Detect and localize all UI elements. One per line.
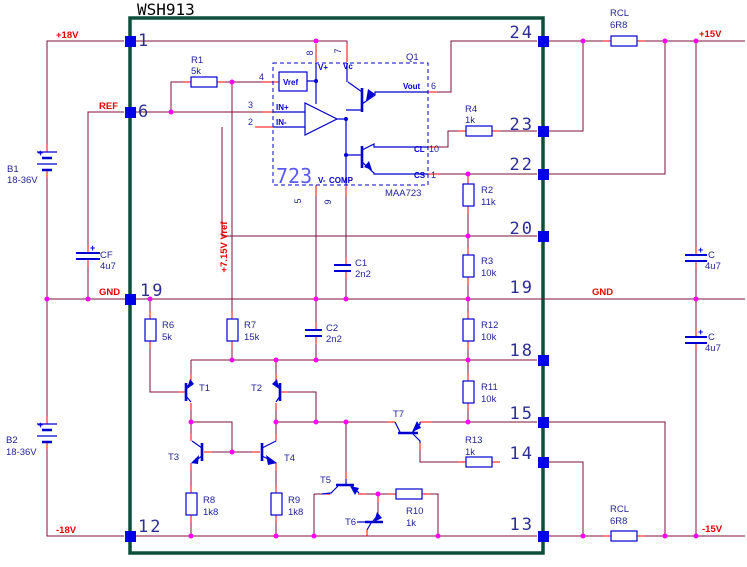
pin-square-23 <box>538 126 549 137</box>
label-C-bottom-plus: + <box>698 327 703 337</box>
schematic-canvas: WSH913 1 6 19 12 24 23 22 20 19 18 15 14… <box>0 0 747 567</box>
label-CF-plus: + <box>90 243 95 253</box>
label-MAA723: MAA723 <box>385 188 421 199</box>
resistor-RCL-bottom <box>611 531 637 541</box>
ic-723-opamp <box>305 103 337 135</box>
label-T7: T7 <box>393 409 404 420</box>
net-label-gnd-left: GND <box>99 287 120 298</box>
transistor-T6 <box>357 512 383 530</box>
label-ic-vout: Vout <box>403 82 421 91</box>
net-label-vref-rail: +7.15V Vref <box>219 221 230 273</box>
pin-label-23: 23 <box>510 115 534 135</box>
resistor-R1 <box>191 77 217 87</box>
label-R2-ref: R2 <box>481 185 493 196</box>
pin-square-19 <box>125 294 136 305</box>
label-vref-block: Vref <box>283 78 298 87</box>
label-R7-ref: R7 <box>244 320 256 331</box>
net-label-minus15: -15V <box>702 524 723 535</box>
label-ic-pin10: 10 <box>429 144 439 154</box>
pin-label-1: 1 <box>138 31 150 51</box>
capacitor-C-bottom <box>685 337 707 343</box>
label-T5: T5 <box>320 475 331 486</box>
pin-square-6 <box>125 107 136 118</box>
label-C-top-ref: C <box>708 250 715 261</box>
label-B1-ref: B1 <box>7 164 19 175</box>
label-ic-pin8: 8 <box>305 50 315 55</box>
label-R3-ref: R3 <box>481 256 493 267</box>
pin-square-18 <box>538 355 549 366</box>
label-R8-val: 1k8 <box>203 507 218 518</box>
resistor-R9 <box>271 493 282 515</box>
label-C2-val: 2n2 <box>326 334 342 345</box>
transistor-T2 <box>272 379 280 402</box>
pin-square-22 <box>538 169 549 180</box>
label-ic-vc: Vc <box>343 62 353 71</box>
label-ic-comp: COMP <box>329 176 354 185</box>
label-R4-val: 1k <box>465 115 475 126</box>
label-ic-pin7: 7 <box>333 48 343 53</box>
wire-r6-column <box>150 299 178 392</box>
resistor-R10 <box>396 489 422 499</box>
resistor-R4 <box>466 126 492 136</box>
wire-negative-rail <box>47 178 745 536</box>
label-R6-ref: R6 <box>162 320 174 331</box>
transistor-T4 <box>262 441 277 465</box>
label-R11-ref: R11 <box>481 382 498 393</box>
label-ic-pin2: 2 <box>248 117 253 127</box>
pin-label-19-left: 19 <box>140 281 164 301</box>
label-RCL-top-val: 6R8 <box>610 20 627 31</box>
net-label-plus15: +15V <box>699 29 722 40</box>
label-RCL-bottom-ref: RCL <box>610 504 629 515</box>
label-C1-val: 2n2 <box>355 269 371 280</box>
label-R7-val: 15k <box>244 332 260 343</box>
resistor-R7 <box>227 319 238 341</box>
wire-in-minus-pin20 <box>222 127 537 236</box>
pin-label-24: 24 <box>510 23 534 43</box>
resistor-R11 <box>463 381 474 403</box>
label-C-top-plus: + <box>698 245 703 255</box>
label-C-bottom-ref: C <box>708 332 715 343</box>
label-R9-val: 1k8 <box>288 507 303 518</box>
label-ic-pin9: 9 <box>323 199 333 204</box>
label-Q1: Q1 <box>406 52 419 63</box>
label-C-top-val: 4u7 <box>705 261 721 272</box>
label-ic-cs: CS <box>414 171 426 180</box>
label-ic-pin1: 1 <box>431 170 436 180</box>
label-ic-inplus: IN+ <box>276 103 289 112</box>
label-ic-cl: CL <box>414 145 425 154</box>
pin-square-20 <box>538 231 549 242</box>
pin-label-18: 18 <box>510 341 534 361</box>
label-ic-inminus: IN- <box>276 118 287 127</box>
label-T6: T6 <box>345 517 356 528</box>
pin-label-12: 12 <box>138 517 162 537</box>
label-C2-ref: C2 <box>326 323 338 334</box>
label-RCL-bottom-val: 6R8 <box>610 516 627 527</box>
resistor-R8 <box>186 493 197 515</box>
label-B2-plus: + <box>38 420 43 430</box>
label-R8-ref: R8 <box>203 495 215 506</box>
label-R10-ref: R10 <box>406 506 423 517</box>
net-label-gnd-right: GND <box>592 287 613 298</box>
label-ic-pin3: 3 <box>248 100 253 110</box>
label-T4: T4 <box>284 453 295 464</box>
label-B1-val: 18-36V <box>7 175 38 186</box>
label-R1-ref: R1 <box>191 55 203 66</box>
pin-label-20: 20 <box>510 219 534 239</box>
label-T2: T2 <box>251 383 262 394</box>
label-ic-pin5: 5 <box>293 198 303 203</box>
label-B1-plus: + <box>38 148 43 158</box>
resistor-R13 <box>466 457 492 467</box>
label-R13-val: 1k <box>465 447 475 458</box>
net-label-ref: REF <box>99 101 118 112</box>
label-T1: T1 <box>199 383 210 394</box>
capacitor-CF <box>76 253 100 259</box>
wire-ref-net <box>88 82 262 360</box>
label-R9-ref: R9 <box>288 495 300 506</box>
transistor-T7 <box>395 421 421 443</box>
capacitor-C2 <box>305 330 322 336</box>
label-C1-ref: C1 <box>355 258 367 269</box>
label-B2-val: 18-36V <box>6 447 37 458</box>
transistor-T1 <box>186 379 194 402</box>
label-R6-val: 5k <box>162 332 172 343</box>
transistors <box>186 379 421 530</box>
label-R12-ref: R12 <box>481 320 498 331</box>
label-R10-val: 1k <box>406 518 416 529</box>
pin-label-6: 6 <box>138 102 150 122</box>
pin-label-14: 14 <box>510 444 534 464</box>
resistor-R3 <box>463 255 474 277</box>
label-ic-vminus: V- <box>318 176 326 185</box>
schematic-title: WSH913 <box>137 0 195 19</box>
capacitor-C-top <box>685 255 707 261</box>
net-label-plus18: +18V <box>56 30 79 41</box>
label-RCL-top-ref: RCL <box>610 8 629 19</box>
pin-square-1 <box>125 36 136 47</box>
label-R1-val: 5k <box>191 66 201 77</box>
pin-label-22: 22 <box>510 155 534 175</box>
label-B2-ref: B2 <box>6 435 18 446</box>
label-R11-val: 10k <box>481 394 497 405</box>
pin-label-19-right: 19 <box>510 278 534 298</box>
label-ic-pin4: 4 <box>259 72 264 82</box>
label-CF-val: 4u7 <box>100 261 116 272</box>
pin-square-12 <box>125 531 136 542</box>
label-R12-val: 10k <box>481 332 497 343</box>
pin-square-13 <box>538 531 549 542</box>
capacitor-C1 <box>334 265 351 271</box>
pin-label-13: 13 <box>510 515 534 535</box>
label-R3-val: 10k <box>481 268 497 279</box>
label-ic-pin6: 6 <box>431 81 436 91</box>
resistor-R6 <box>145 319 156 341</box>
label-T3: T3 <box>168 452 179 463</box>
pin-square-24 <box>538 36 549 47</box>
module-border <box>130 18 543 553</box>
net-label-minus18: -18V <box>56 525 77 536</box>
pin-label-15: 15 <box>510 404 534 424</box>
label-R13-ref: R13 <box>465 435 482 446</box>
label-ic-vplus: V+ <box>318 63 328 72</box>
label-R4-ref: R4 <box>465 104 477 115</box>
resistor-R12 <box>463 319 474 341</box>
resistor-R2 <box>463 184 474 206</box>
pin-square-14 <box>538 457 549 468</box>
transistor-T3 <box>191 441 202 464</box>
label-R2-val: 11k <box>481 197 496 208</box>
label-CF-ref: CF <box>100 250 113 261</box>
label-723: 723 <box>276 164 312 188</box>
resistor-RCL-top <box>611 36 637 46</box>
pin-square-15 <box>538 417 549 428</box>
label-C-bottom-val: 4u7 <box>705 343 721 354</box>
